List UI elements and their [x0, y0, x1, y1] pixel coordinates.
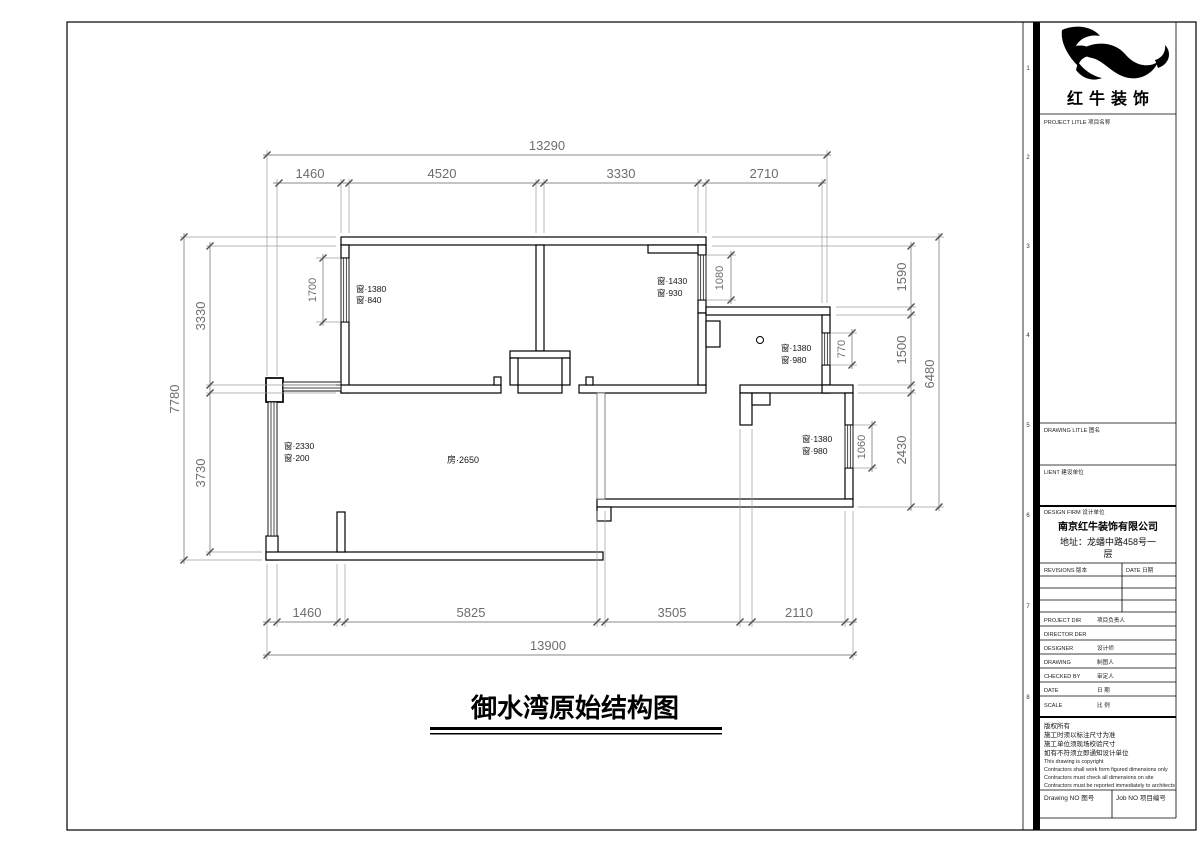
row-checked-cn: 审定人 [1097, 672, 1114, 680]
window-label: 窗·2330 [284, 441, 315, 451]
window-label: 窗·1380 [802, 434, 833, 444]
row-project-dir-en: PROJECT DIR [1044, 618, 1081, 624]
pipe-symbol [757, 337, 764, 344]
zone-marker: 1 [1026, 66, 1030, 72]
row-designer-cn: 设计师 [1097, 644, 1114, 652]
dim-window-lower-right: 1060 [856, 435, 868, 459]
row-scale-en: SCALE [1044, 703, 1063, 709]
dim-top-seg: 4520 [428, 166, 457, 181]
copyright-block: 版权所有 施工时须以标注尺寸为准 施工单位须现场校验尺寸 如有不符须立即通知设计… [1044, 721, 1175, 789]
client-label: LIENT 建设单位 [1044, 468, 1084, 476]
titleblock: 红牛装饰 PROJECT LITLE 项目名称 DRAWING LITLE 图名… [1040, 27, 1176, 818]
plan-walls [266, 237, 853, 560]
dim-top-seg: 3330 [607, 166, 636, 181]
zone-marker: 8 [1026, 695, 1030, 701]
dim-top-seg: 1460 [296, 166, 325, 181]
row-project-dir-cn: 项目负责人 [1097, 616, 1125, 624]
column [266, 378, 283, 402]
dim-right-seg: 1500 [894, 336, 909, 365]
dim-bottom-seg: 1460 [293, 605, 322, 620]
window-label: 窗·1380 [781, 343, 812, 353]
copyright-line: 如有不符须立即通知设计单位 [1044, 748, 1129, 757]
zone-marker: 2 [1026, 155, 1030, 161]
dim-top-seg: 2710 [750, 166, 779, 181]
dim-left-seg: 3730 [193, 459, 208, 488]
dim-left-seg: 3330 [193, 302, 208, 331]
drawing-no-label: Drawing NO 图号 [1044, 794, 1095, 802]
window-bedroom2-right [698, 255, 706, 300]
window-label: 窗·930 [657, 288, 683, 298]
plan-labels: 窗·1380 窗·840 窗·1430 窗·930 窗·1380 窗·980 窗… [284, 276, 833, 465]
copyright-line: Contractors shall work form figured dime… [1044, 767, 1168, 773]
row-checked-en: CHECKED BY [1044, 674, 1081, 680]
extension-lines [180, 150, 944, 660]
zone-marker: 4 [1026, 333, 1030, 339]
date-column-label: DATE 日期 [1126, 567, 1154, 574]
window-label: 窗·1430 [657, 276, 688, 286]
row-director-en: DIRECTOR DER [1044, 632, 1086, 638]
dim-right-overall: 6480 [922, 360, 937, 389]
copyright-line: Contractors must be reported immediately… [1044, 783, 1175, 789]
dim-bottom-seg: 2110 [785, 605, 813, 620]
cad-canvas: 1 2 3 4 5 6 7 8 [0, 0, 1200, 844]
window-lower-right [845, 425, 853, 468]
zone-markers: 1 2 3 4 5 6 7 8 [1026, 66, 1030, 701]
project-title-label: PROJECT LITLE 项目名称 [1044, 118, 1111, 126]
window-left-bedroom [341, 258, 349, 322]
copyright-line: 施工单位须现场校验尺寸 [1044, 739, 1116, 748]
job-no-label: Job NO 项目编号 [1116, 793, 1166, 802]
company-name: 南京红牛装饰有限公司 [1058, 520, 1158, 533]
window-label: 窗·1380 [356, 284, 387, 294]
zone-marker: 3 [1026, 244, 1030, 250]
brand-name: 红牛装饰 [1067, 89, 1155, 108]
zone-marker: 7 [1026, 604, 1030, 610]
drawing-title-label: DRAWING LITLE 图名 [1044, 426, 1100, 434]
dim-left-overall: 7780 [167, 385, 182, 414]
dimension-lines [184, 155, 939, 655]
zone-marker: 5 [1026, 423, 1030, 429]
dim-right-seg: 2430 [894, 436, 909, 465]
copyright-line: Contractors must check all dimensions on… [1044, 775, 1154, 781]
copyright-line: This drawing is copyright [1044, 759, 1104, 765]
window-label: 窗·200 [284, 453, 310, 463]
dim-window-left: 1700 [307, 278, 319, 302]
row-drawing-cn: 制图人 [1097, 658, 1114, 666]
window-label: 窗·980 [802, 446, 828, 456]
row-date-cn: 日 期 [1097, 687, 1110, 694]
dim-window-top-right: 1080 [714, 266, 726, 290]
window-label: 窗·840 [356, 295, 382, 305]
copyright-line: 版权所有 [1044, 721, 1071, 730]
row-date-en: DATE [1044, 688, 1059, 694]
dim-window-small-room: 770 [836, 340, 848, 358]
row-drawing-en: DRAWING [1044, 660, 1071, 666]
room-opening [597, 393, 605, 499]
dim-right-seg: 1590 [894, 263, 909, 292]
dim-bottom-seg: 3505 [658, 605, 687, 620]
design-firm-label: DESIGN FIRM 设计单位 [1044, 508, 1105, 516]
drawing-title: 御水湾原始结构图 [430, 693, 722, 735]
brand-logo-icon [1062, 27, 1169, 80]
zone-marker: 6 [1026, 513, 1030, 519]
window-small-room [822, 333, 830, 365]
row-designer-en: DESIGNER [1044, 646, 1073, 652]
drawing-title-text: 御水湾原始结构图 [470, 693, 679, 723]
dim-bottom-seg: 5825 [457, 605, 486, 620]
copyright-line: 施工时须以标注尺寸为准 [1044, 730, 1116, 739]
dim-bottom-overall: 13900 [530, 638, 566, 653]
window-label: 窗·980 [781, 355, 807, 365]
company-address-line2: 层 [1103, 549, 1112, 559]
room-height-label: 房·2650 [447, 454, 479, 465]
row-scale-cn: 比 例 [1097, 701, 1110, 709]
title-underline-thick [430, 727, 722, 730]
revisions-label: REVISIONS 版本 [1044, 566, 1088, 574]
dimension-ticks [181, 152, 943, 659]
drawing-sheet: 1 2 3 4 5 6 7 8 [0, 0, 1200, 844]
dim-top-overall: 13290 [529, 138, 565, 153]
company-address-line1: 地址：龙蟠中路458号一 [1060, 536, 1156, 547]
title-underline-thin [430, 733, 722, 735]
